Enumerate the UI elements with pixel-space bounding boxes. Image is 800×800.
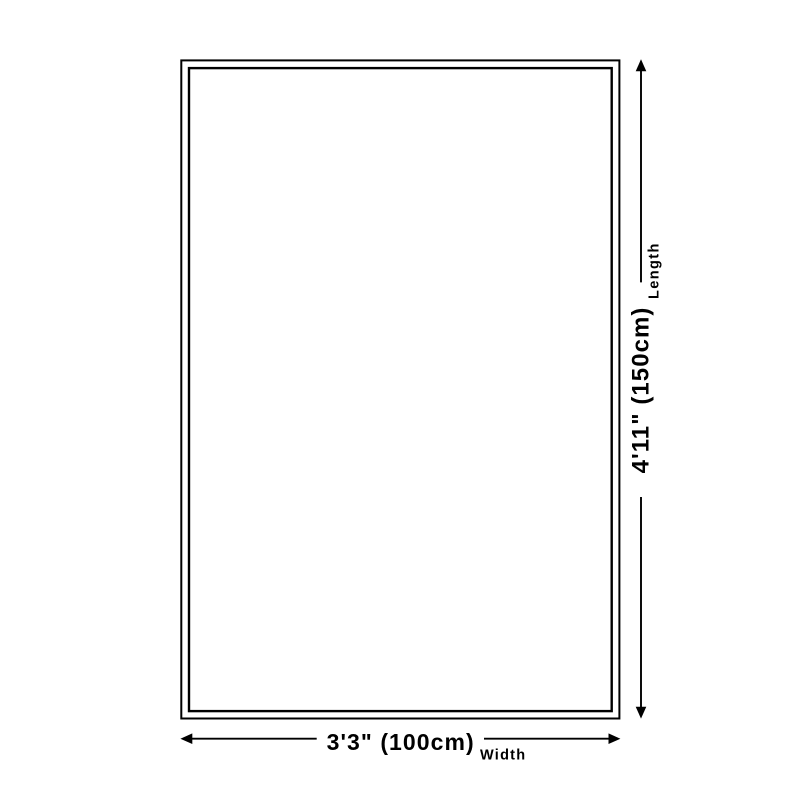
svg-text:4'11" (150cm): 4'11" (150cm) <box>627 307 654 474</box>
svg-text:Length: Length <box>646 242 662 299</box>
svg-text:Width: Width <box>480 748 526 764</box>
svg-text:3'3" (100cm): 3'3" (100cm) <box>327 729 475 755</box>
